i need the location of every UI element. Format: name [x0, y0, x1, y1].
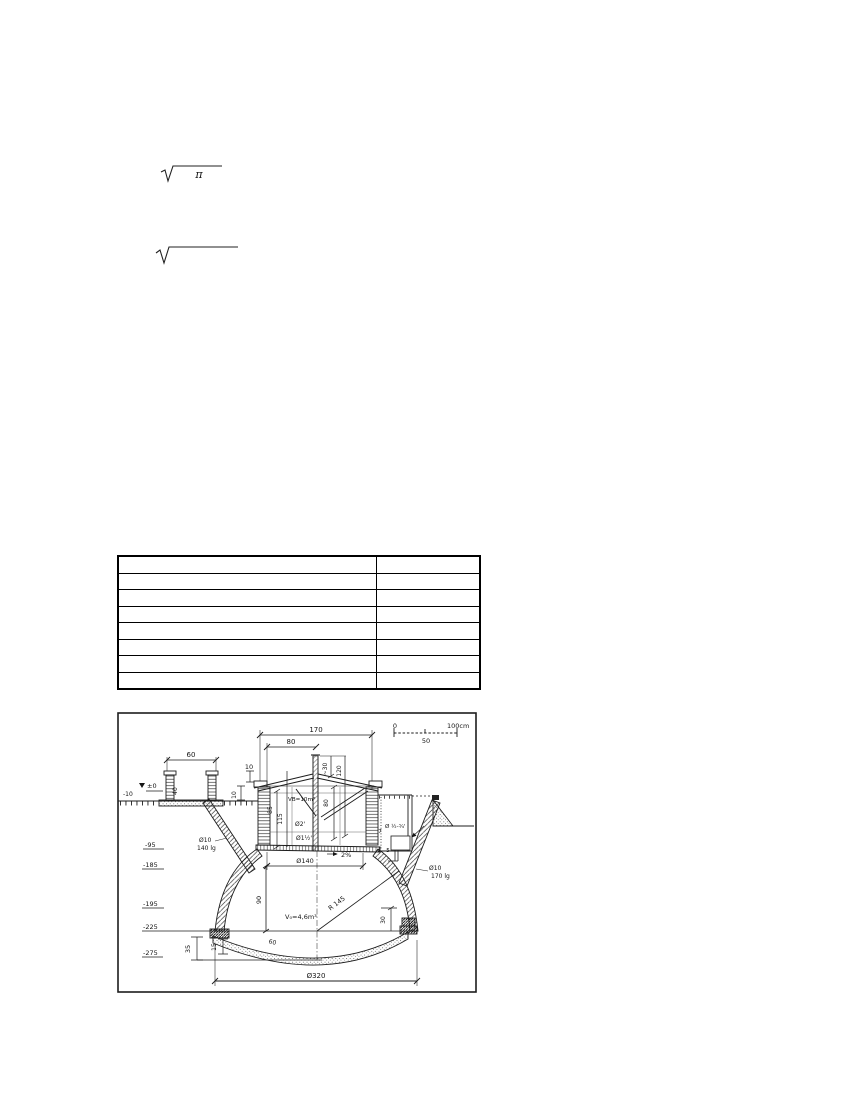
dim-60-floor-label: 60 — [268, 938, 277, 947]
dim-15-label: 15 — [211, 943, 218, 951]
elevation-m195-label: -195 — [143, 900, 158, 908]
dim-85-label: 85 — [267, 806, 274, 814]
scale-zero-label: 0 — [393, 722, 397, 730]
dim-10-top-label: 10 — [245, 763, 253, 771]
figure-frame — [118, 713, 476, 992]
elevation-m185-label: -185 — [143, 861, 158, 869]
dim-30-right-label: 30 — [380, 916, 387, 924]
document-page: π 0 100cm 50 170 — [0, 0, 850, 1100]
formula-radical-pi: π — [161, 166, 222, 181]
dim-7-label: 7 — [378, 829, 382, 835]
elevation-0-label: ±0 — [147, 782, 157, 790]
dim-60-label: 60 — [187, 751, 196, 759]
tank-volume-label: VB=10m³ — [288, 796, 315, 803]
floor-slope-label: 2% — [341, 851, 351, 859]
elevation-m275-label: -275 — [143, 949, 158, 957]
dim-115-label: 115 — [277, 813, 284, 825]
dim-10-side: 10 — [231, 786, 245, 800]
dim-320-label: Ø320 — [307, 972, 326, 980]
dim-80-top-label: 80 — [287, 738, 296, 746]
elevation-m10-label: -10 — [123, 791, 133, 798]
rebar-right-line1: Ø10 — [429, 865, 442, 872]
scale-bar: 0 100cm 50 — [393, 722, 469, 745]
pipe-15in-label: Ø1½' — [296, 835, 312, 842]
dim-5-label: 5 — [386, 848, 390, 854]
dim-140-label: Ø140 — [296, 857, 314, 865]
dim-40-box-label: 40 — [172, 787, 179, 795]
elevation-m225-label: -225 — [143, 923, 158, 931]
dim-120-label: 120 — [336, 765, 343, 777]
left-manhole: 60 40 — [159, 751, 223, 806]
radius-145-label: R 145 — [327, 894, 347, 912]
cistern-vault: 60 — [210, 849, 418, 965]
elevation-labels: -95 -185 -195 -225 -275 — [142, 841, 164, 957]
dim-80-top: 80 — [264, 738, 319, 783]
rebar-right-line2: 170 lg — [431, 873, 450, 880]
dim-170-label: 170 — [309, 726, 322, 734]
dim-30-pipe-label: ~30 — [322, 762, 329, 775]
rebar-left-line2: 140 lg — [197, 845, 216, 852]
pi-symbol: π — [194, 168, 203, 181]
formula-radical-empty — [156, 247, 238, 263]
rebar-left-line1: Ø10 — [199, 837, 212, 844]
dim-35-label: 35 — [184, 945, 192, 953]
page-graphics: π 0 100cm 50 170 — [0, 0, 850, 1100]
cistern-interior: R 145 90 V₀=4,6m³ 30 35 15 — [142, 851, 410, 962]
pipe-2in-label: Ø2' — [295, 821, 306, 828]
filter-gravel-label: Ø ½-¾' — [385, 823, 406, 830]
level-triangle-icon — [139, 783, 145, 788]
dim-10-side-label: 10 — [231, 791, 238, 799]
dim-80-inner-label: 80 — [323, 799, 330, 807]
elevation-m95-label: -95 — [145, 841, 156, 849]
dim-10-top: 10 — [245, 763, 254, 782]
scale-end-label: 100cm — [447, 722, 469, 730]
scale-mid-label: 50 — [422, 737, 430, 745]
upper-tank: VB=10m³ Ø2' Ø1½' — [254, 755, 382, 852]
cistern-drawing: 0 100cm 50 170 80 60 — [118, 713, 476, 992]
dim-90-label: 90 — [255, 896, 263, 904]
cistern-volume-label: V₀=4,6m³ — [285, 913, 317, 921]
